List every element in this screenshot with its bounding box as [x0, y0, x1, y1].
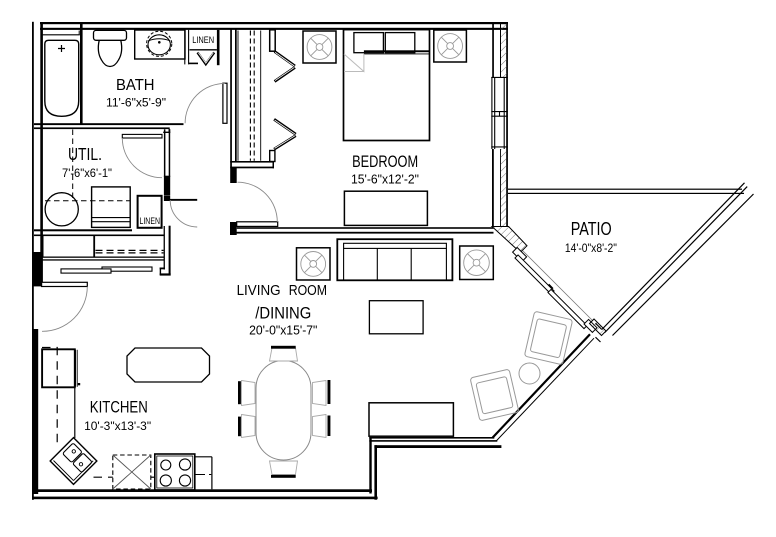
svg-text:LINEN: LINEN [140, 216, 161, 226]
svg-text:/DINING: /DINING [255, 305, 311, 323]
svg-text:14'-0"x8'-2": 14'-0"x8'-2" [565, 241, 617, 255]
svg-text:PATIO: PATIO [571, 218, 612, 239]
svg-text:LIVING: LIVING [237, 282, 281, 299]
svg-text:7'-6"x6'-1": 7'-6"x6'-1" [62, 166, 112, 180]
svg-text:BATH: BATH [116, 77, 155, 94]
svg-text:BEDROOM: BEDROOM [352, 152, 418, 171]
svg-text:LINEN: LINEN [192, 35, 214, 45]
svg-text:ROOM: ROOM [289, 282, 327, 299]
svg-text:15'-6"x12'-2": 15'-6"x12'-2" [351, 173, 419, 187]
svg-text:10'-3"x13'-3": 10'-3"x13'-3" [84, 419, 151, 433]
svg-text:11'-6"x5'-9": 11'-6"x5'-9" [106, 96, 166, 110]
svg-text:KITCHEN: KITCHEN [90, 398, 148, 417]
svg-text:UTIL.: UTIL. [68, 144, 102, 164]
svg-text:20'-0"x15'-7": 20'-0"x15'-7" [249, 324, 317, 338]
